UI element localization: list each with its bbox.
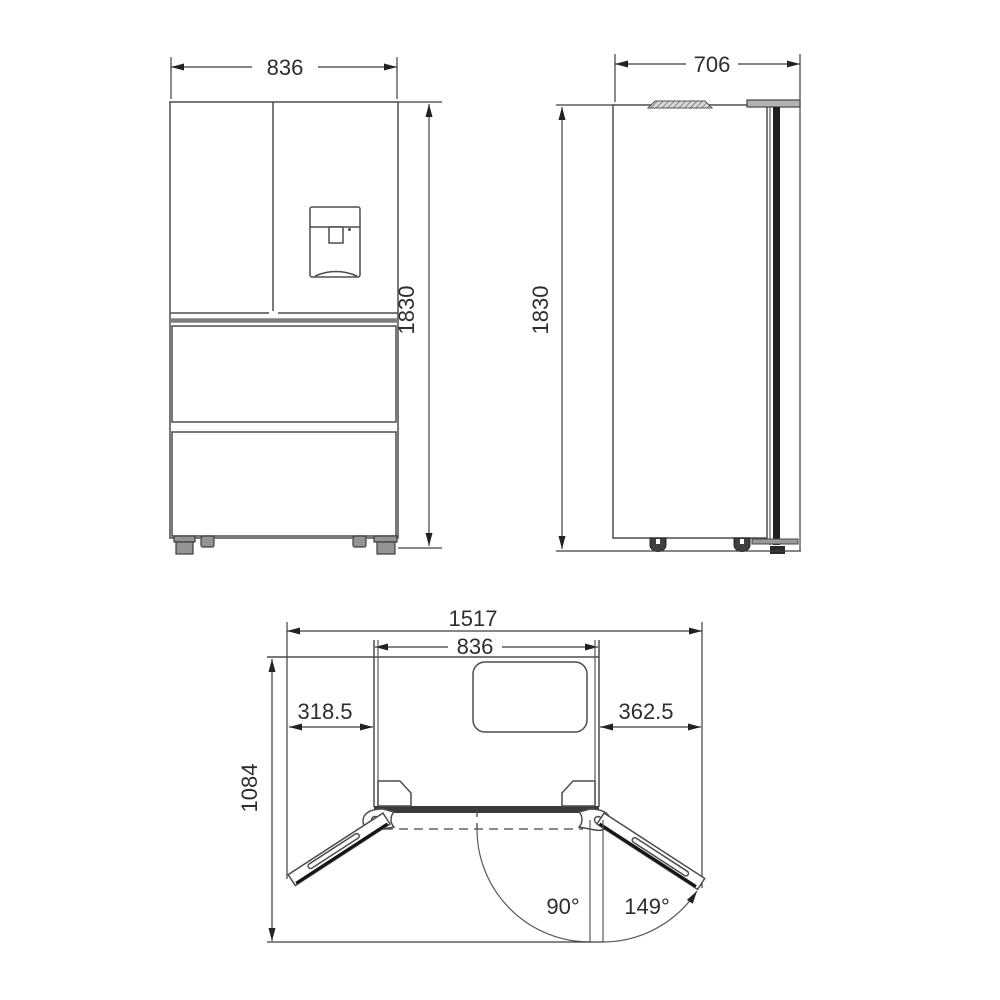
- front-width-dimension: 836: [171, 55, 397, 99]
- right-foot-flange: [374, 536, 397, 542]
- top-cover-plate: [473, 662, 587, 732]
- arrowhead: [360, 724, 373, 731]
- caster-slot: [740, 539, 744, 544]
- top-vent-grille: [648, 101, 712, 108]
- arrowhead: [426, 533, 433, 546]
- arrowhead: [559, 107, 566, 120]
- arrowhead: [287, 628, 300, 635]
- door-swing-arcs: 90° 149°: [477, 820, 700, 942]
- arrowhead: [426, 104, 433, 117]
- top-hinge-cover: [747, 100, 800, 107]
- open-depth-label: 1084: [237, 764, 262, 813]
- top-view: 1517 836: [237, 606, 705, 942]
- left-wheel: [201, 536, 214, 547]
- left-projection-label: 318.5: [297, 699, 352, 724]
- front-bottom-drawer: [172, 432, 396, 536]
- arrowhead: [269, 928, 276, 941]
- caster-slot: [656, 539, 660, 544]
- side-height-label: 1830: [528, 286, 553, 335]
- side-view: 706 1830: [528, 52, 801, 554]
- dispenser-nozzle: [329, 227, 343, 243]
- right-projection-dimension: 362.5: [600, 699, 701, 731]
- right-door-open: [597, 813, 705, 889]
- left-foot-flange: [174, 536, 195, 542]
- top-cabinet-width-dimension: 836: [375, 634, 598, 659]
- front-height-dimension: 1830: [394, 102, 442, 548]
- left-door-gasket-face: [296, 824, 387, 883]
- left-corner-plate: [378, 781, 411, 806]
- arrowhead: [615, 61, 628, 68]
- front-width-label: 836: [267, 55, 304, 80]
- right-door-gasket-face: [599, 824, 695, 887]
- left-door-open: [288, 813, 390, 885]
- arrowhead: [559, 536, 566, 549]
- arrowhead: [289, 724, 302, 731]
- front-middle-drawer: [172, 326, 396, 422]
- arrowhead: [269, 659, 276, 672]
- water-dispenser: [310, 207, 360, 277]
- side-cabinet-outline: [613, 105, 767, 538]
- top-cabinet-width-label: 836: [457, 634, 494, 659]
- left-foot: [176, 542, 193, 554]
- right-corner-plate: [562, 781, 595, 806]
- arrowhead: [375, 644, 388, 651]
- right-foot: [377, 542, 395, 554]
- front-height-label: 1830: [394, 286, 419, 335]
- right-projection-label: 362.5: [618, 699, 673, 724]
- bottom-hinge-bar: [752, 539, 798, 544]
- arrowhead: [600, 724, 613, 731]
- swing-arc-90: [477, 829, 590, 942]
- arrowhead: [585, 644, 598, 651]
- overall-width-label: 1517: [449, 606, 498, 631]
- side-casters: [650, 538, 750, 552]
- arrowhead: [688, 724, 701, 731]
- front-view: 836: [170, 55, 442, 554]
- arrowhead: [787, 61, 800, 68]
- cabinet-front-edge: [374, 806, 599, 813]
- side-depth-label: 706: [694, 52, 731, 77]
- right-wheel: [353, 536, 366, 547]
- arrowhead: [384, 64, 397, 71]
- arrowhead: [689, 628, 702, 635]
- right-door-angle-label: 149°: [624, 894, 670, 919]
- left-door-angle-label: 90°: [546, 894, 579, 919]
- side-door-foot: [770, 546, 785, 554]
- dimension-drawing-page: 836: [0, 0, 1000, 1000]
- left-projection-dimension: 318.5: [289, 699, 373, 731]
- arrowhead: [171, 64, 184, 71]
- refrigerator-dimension-diagram: 836: [0, 0, 1000, 1000]
- side-door-panel: [773, 107, 780, 545]
- dispenser-button: [348, 228, 351, 231]
